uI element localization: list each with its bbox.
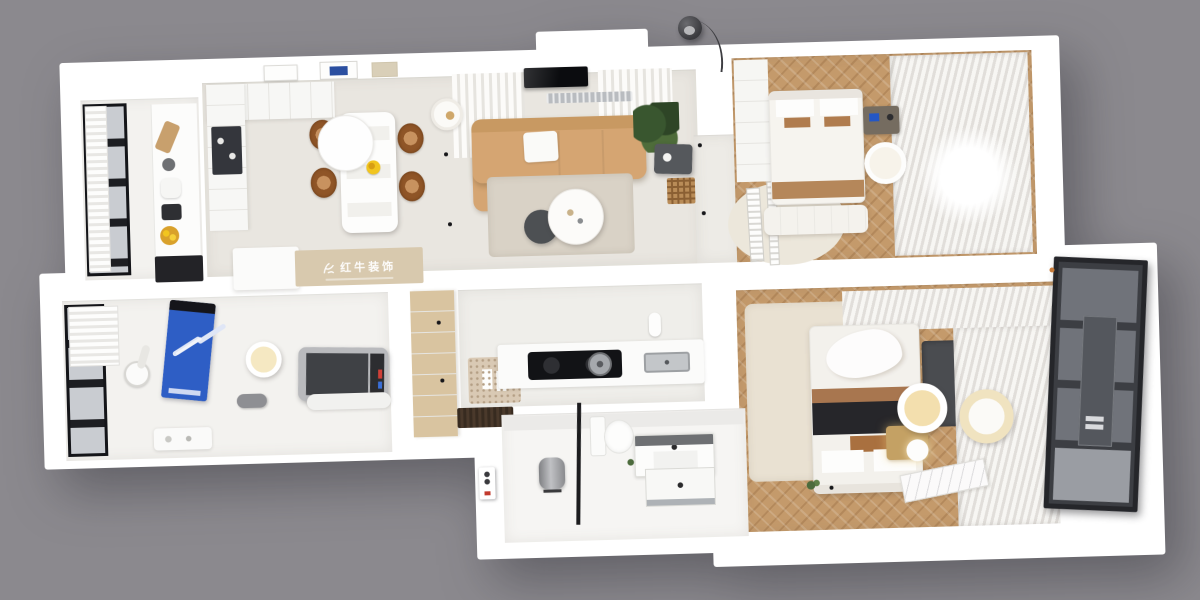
- riser-pipe: [576, 403, 581, 525]
- apartment-footprint: 红牛装饰: [31, 2, 1178, 585]
- water-heater: [539, 457, 566, 490]
- island-watermark-band: 红牛装饰: [295, 247, 424, 287]
- art-frame-beige: [371, 62, 397, 78]
- glass-display-cabinet: [211, 126, 242, 175]
- tv: [524, 66, 589, 88]
- downlight: [440, 378, 444, 382]
- plant-sprig: [805, 478, 821, 492]
- downlight: [444, 152, 448, 156]
- art-frame-white: [263, 64, 297, 81]
- floorplan-scene: 红牛装饰: [0, 0, 1200, 600]
- brand-logo-icon: [322, 261, 335, 274]
- art-frame-blue: [319, 61, 357, 80]
- coffee-machine: [161, 204, 181, 221]
- sofa-throw: [523, 131, 559, 163]
- entry-door-handle: [1086, 416, 1104, 422]
- treadmill-base: [307, 392, 391, 410]
- door-marker: [1049, 267, 1054, 272]
- gym-shelf: [154, 427, 213, 451]
- hall-wood-cabinet: [410, 290, 458, 437]
- utility-panel: [479, 467, 496, 499]
- lattice-screen: [667, 177, 696, 204]
- gym-roman-shade: [68, 306, 120, 367]
- arc-lamp-shade-notch: [684, 26, 695, 35]
- side-table: [654, 144, 693, 175]
- yoga-mat: [161, 300, 216, 402]
- bedroom1-nightstand: [863, 106, 900, 135]
- bedroom1-bench: [764, 205, 869, 236]
- bedroom1-wardrobe: [734, 59, 771, 182]
- kettle: [161, 178, 182, 199]
- heater-stand: [543, 489, 561, 493]
- foam-roller: [237, 393, 267, 408]
- downlight: [829, 486, 833, 490]
- shower-tray: [645, 467, 716, 507]
- wall-block-ac-ledge: [536, 29, 649, 66]
- island-counter: [233, 247, 300, 291]
- watermark-text: 红牛装饰: [340, 258, 396, 276]
- downlight: [702, 211, 706, 215]
- paper-towel: [649, 312, 662, 336]
- entry-door-panel: [1078, 316, 1117, 447]
- kitchen-sink: [644, 352, 691, 373]
- roman-shade: [85, 106, 112, 273]
- bedroom1-bed: [768, 89, 865, 206]
- dark-cabinet: [155, 255, 204, 282]
